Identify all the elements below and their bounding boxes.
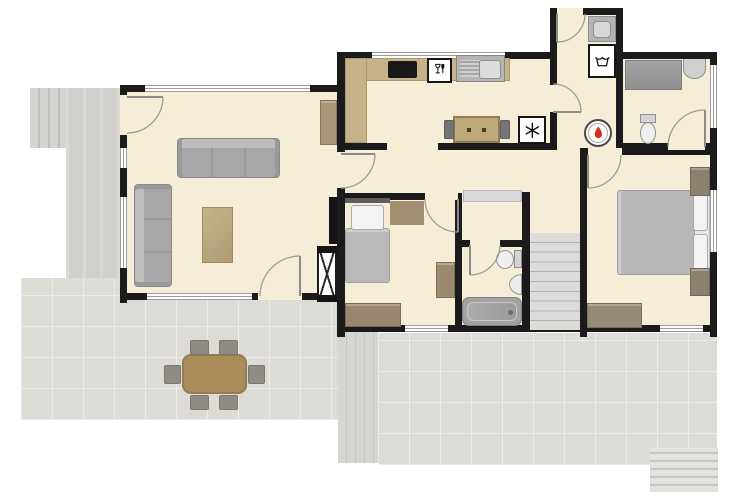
icon-laundry-tub xyxy=(593,49,612,72)
nightstand-south xyxy=(690,268,710,296)
window-living-bottom xyxy=(147,293,252,300)
kitchen-sink xyxy=(456,55,505,82)
doorway-bedroom2 xyxy=(425,193,458,200)
nightstand-north xyxy=(690,167,710,196)
staircase xyxy=(530,233,580,330)
washing-machine xyxy=(588,44,616,78)
living-cabinet xyxy=(320,100,337,145)
hall-sideboard xyxy=(463,190,522,202)
window-master-right xyxy=(710,190,717,252)
doorway-wc xyxy=(668,143,705,150)
bathtub xyxy=(462,297,522,326)
bedroom2-rug xyxy=(390,201,424,225)
icon-snowflake xyxy=(523,121,542,140)
garden-steps-bottom-right xyxy=(650,448,718,492)
cooktop xyxy=(388,61,417,78)
freezer xyxy=(518,116,546,144)
wall-bath-east xyxy=(522,192,530,332)
doorway-entry xyxy=(120,95,127,135)
window-wc-right xyxy=(710,65,717,128)
master-dresser xyxy=(587,303,642,328)
icon-wineglass-fork xyxy=(431,62,447,78)
patio-chair-4 xyxy=(219,395,238,410)
patio-dining-table xyxy=(182,354,247,394)
patio-chair-3 xyxy=(190,395,209,410)
wall-utility-right xyxy=(616,8,623,150)
floor-plan-canvas xyxy=(0,0,750,500)
doorway-living-hall xyxy=(337,152,345,188)
coffee-table xyxy=(202,207,233,263)
master-blanket xyxy=(617,190,695,275)
patio-chair-2 xyxy=(219,340,238,355)
bath-toilet-tank xyxy=(514,250,522,268)
bedroom2-dresser xyxy=(345,303,401,327)
wall-utility-left xyxy=(550,8,557,150)
garden-steps-top-left xyxy=(30,88,68,148)
kitchen-chair-left xyxy=(444,120,454,139)
doorway-living-bottom xyxy=(258,293,302,300)
bedroom2-headboard xyxy=(345,198,390,203)
bedroom2-cabinet xyxy=(436,262,455,298)
tv-unit xyxy=(317,246,337,302)
dishwasher xyxy=(427,58,452,83)
kitchen-chair-right xyxy=(500,120,510,139)
concrete-path xyxy=(66,88,123,288)
bedroom2-blanket xyxy=(345,228,390,283)
window-bedroom2-south xyxy=(405,325,448,332)
utility-sink xyxy=(588,16,616,42)
doorway-master-bedroom xyxy=(588,148,622,155)
sofa-chaise xyxy=(134,184,172,287)
wall-tv xyxy=(329,197,337,244)
kitchen-counter-left xyxy=(345,58,367,143)
wall-bedroom2-east xyxy=(455,193,462,332)
window-living-top xyxy=(145,85,310,92)
wall-north-east xyxy=(622,52,717,59)
doorway-kitchen-utility xyxy=(550,85,557,112)
patio-chair-5 xyxy=(164,365,181,384)
bath-toilet-bowl xyxy=(496,250,514,269)
wc-countertop xyxy=(625,60,682,90)
bedroom2-pillow xyxy=(351,205,384,230)
wall-east-spine xyxy=(337,85,345,337)
doorway-utility-exterior xyxy=(557,8,583,15)
opening-kitchen-hall xyxy=(387,143,438,150)
icon-flame xyxy=(589,124,608,143)
master-pillow-top xyxy=(693,194,708,231)
doorway-bathroom xyxy=(470,240,500,247)
master-pillow-bottom xyxy=(693,234,708,271)
patio-chair-6 xyxy=(248,365,265,384)
sofa-three-seat xyxy=(177,138,280,178)
window-living-left-2 xyxy=(120,197,127,268)
wall-master-west xyxy=(580,148,587,337)
wc-washbasin xyxy=(683,59,706,79)
wall-kitchen-south xyxy=(345,143,557,150)
boiler xyxy=(584,119,612,147)
patio-chair-1 xyxy=(190,340,209,355)
window-living-left-1 xyxy=(120,148,127,168)
window-master-south xyxy=(660,325,703,332)
kitchen-table xyxy=(453,116,500,143)
patio-back xyxy=(378,333,717,465)
wc-toilet-bowl xyxy=(640,122,656,144)
